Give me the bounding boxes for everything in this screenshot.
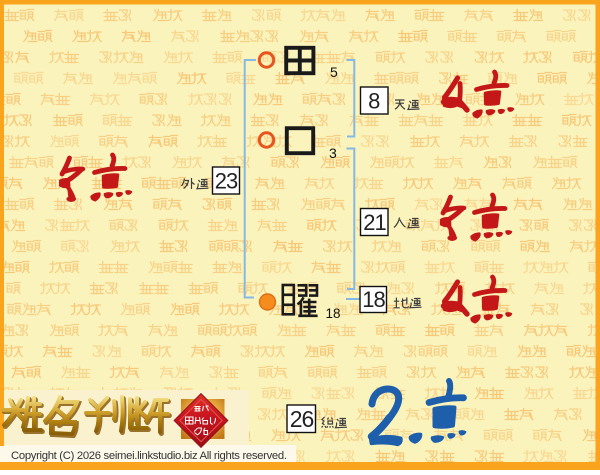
svg-text:Copyright (C) 2026 seimei.link: Copyright (C) 2026 seimei.linkstudio.biz… [11,450,287,462]
svg-text:21: 21 [363,210,386,235]
svg-text:26: 26 [290,406,314,432]
svg-text:8: 8 [368,89,380,114]
svg-text:18: 18 [326,306,341,321]
svg-text:23: 23 [215,169,238,194]
svg-text:3: 3 [329,145,337,161]
svg-text:5: 5 [330,64,338,80]
svg-text:18: 18 [362,287,385,312]
